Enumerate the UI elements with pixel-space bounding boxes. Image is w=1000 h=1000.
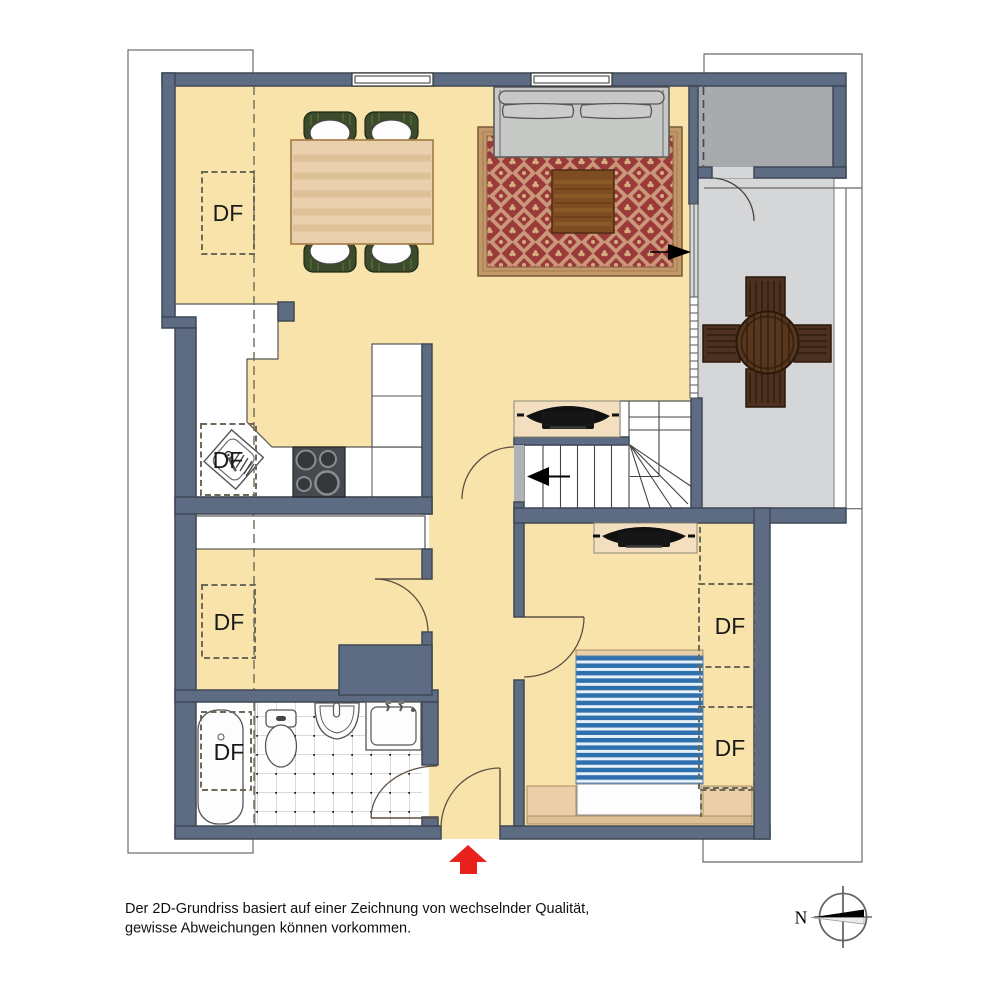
svg-text:Der 2D-Grundriss basiert auf e: Der 2D-Grundriss basiert auf einer Zeich… (125, 901, 589, 917)
svg-text:gewisse Abweichungen können vo: gewisse Abweichungen können vorkommen. (125, 921, 411, 937)
svg-text:N: N (795, 908, 808, 928)
svg-text:DF: DF (213, 200, 244, 226)
svg-text:DF: DF (715, 613, 746, 639)
svg-text:DF: DF (214, 609, 245, 635)
svg-text:DF: DF (715, 735, 746, 761)
svg-text:DF: DF (214, 739, 245, 765)
svg-text:DF: DF (213, 447, 244, 473)
